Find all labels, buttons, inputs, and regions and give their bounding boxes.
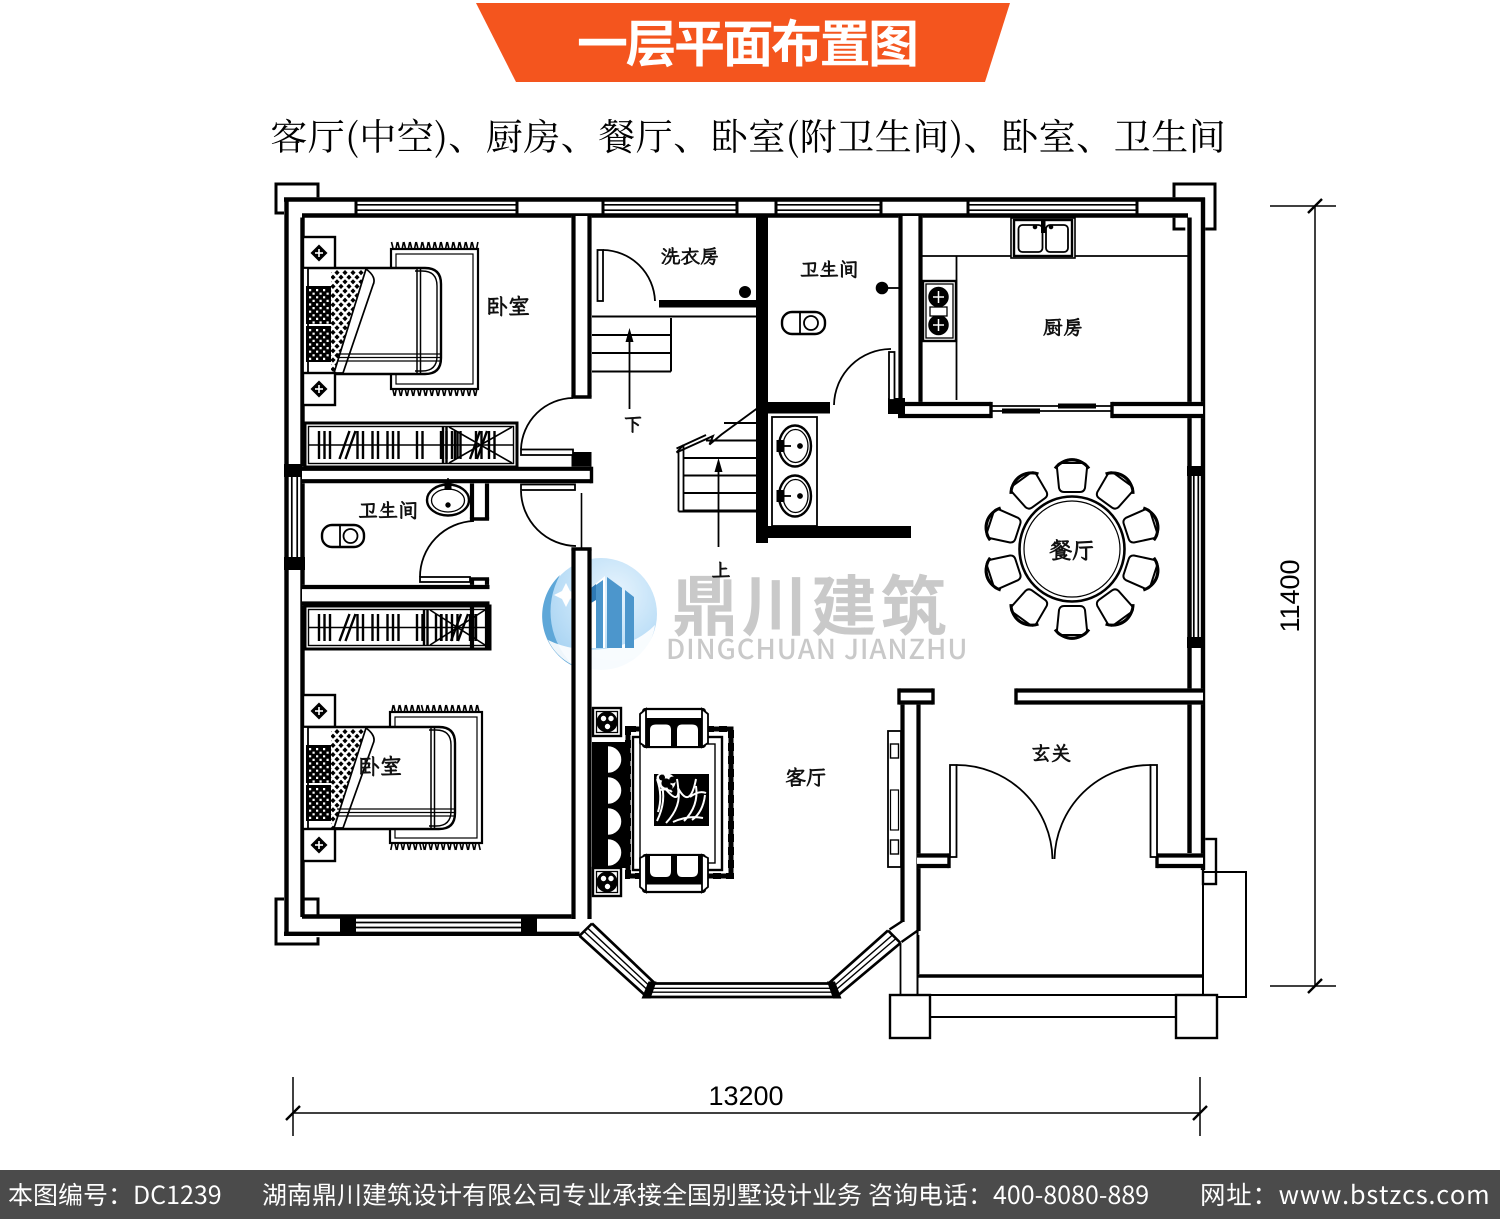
svg-text:13200: 13200	[708, 1081, 783, 1111]
svg-text:11400: 11400	[1275, 559, 1305, 632]
